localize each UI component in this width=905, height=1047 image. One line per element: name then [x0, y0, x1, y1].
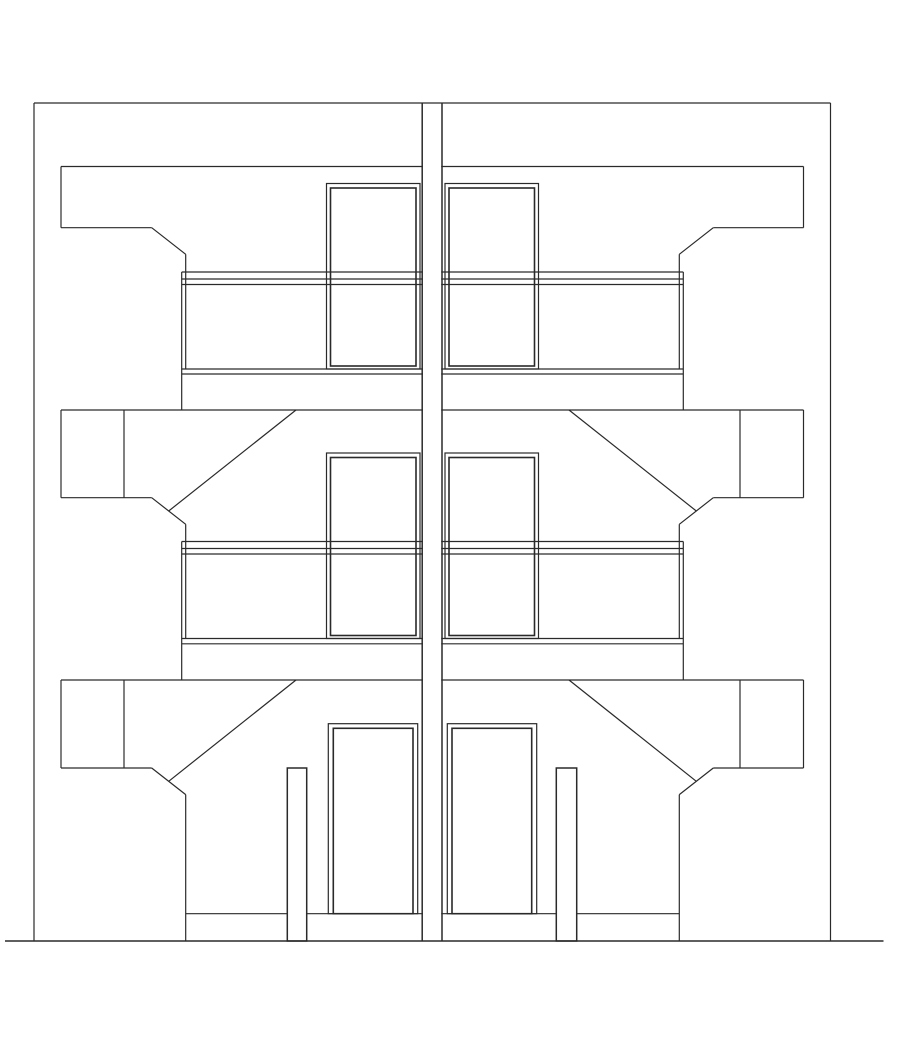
- layer-party-wall: [422, 103, 442, 941]
- door-right-opening: [447, 724, 536, 914]
- door-left-frame: [333, 728, 413, 913]
- elevation-svg-canvas: [0, 0, 905, 1047]
- door-left-opening: [328, 724, 417, 914]
- elevation-drawing: [0, 0, 905, 1047]
- party-wall-fill: [423, 104, 441, 940]
- mid-window-right-frame: [449, 458, 535, 636]
- upper-window-left-opening: [327, 184, 421, 370]
- ground-canopy-diagonal-left: [169, 680, 296, 781]
- porch-post-right: [556, 768, 576, 941]
- mid-window-left-opening: [327, 453, 421, 639]
- upper-window-right-opening: [445, 184, 539, 370]
- roof-slab-chamfer-right: [679, 228, 713, 255]
- mid-window-left-frame: [331, 458, 417, 636]
- layer-building-shell: [5, 103, 884, 941]
- roof-slab-chamfer-left: [152, 228, 186, 255]
- ground-canopy-diagonal-right: [569, 680, 696, 781]
- mid-canopy-diagonal-left: [169, 410, 296, 511]
- porch-post-left: [287, 768, 306, 941]
- upper-window-left-frame: [331, 188, 417, 366]
- door-right-frame: [452, 728, 532, 913]
- mid-canopy-diagonal-right: [569, 410, 696, 511]
- mid-window-right-opening: [445, 453, 539, 639]
- upper-window-right-frame: [449, 188, 535, 366]
